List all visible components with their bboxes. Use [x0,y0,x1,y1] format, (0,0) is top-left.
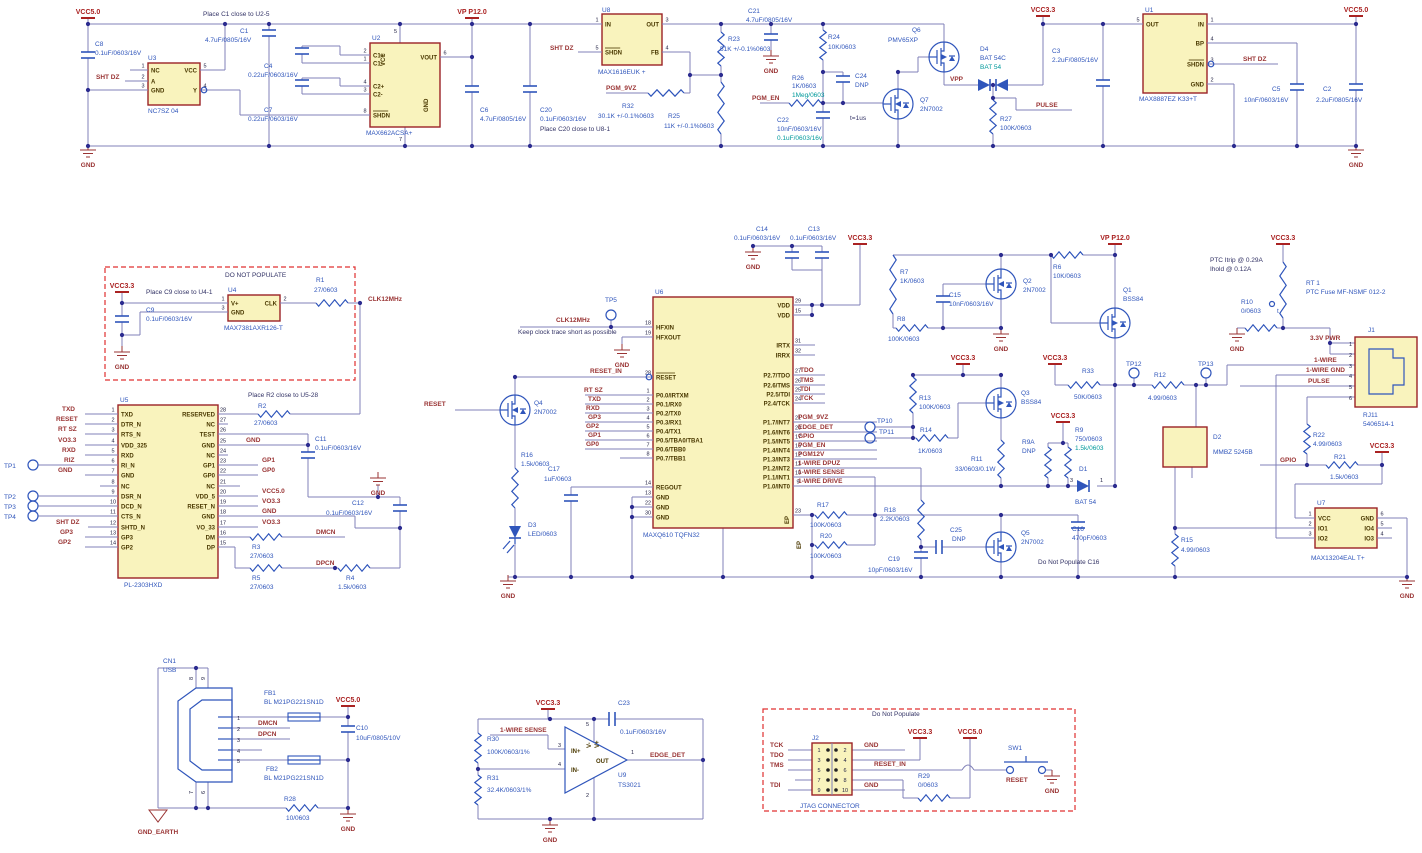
label: 1.5k/0603 [521,461,550,468]
label: OUT [596,759,609,765]
svg-text:23: 23 [220,459,226,465]
junction-dot [719,144,723,148]
label: 5 [237,759,240,765]
label: EP [785,516,791,524]
label: MAX13204EAL T+ [1311,555,1365,562]
label: LED/0603 [528,531,557,538]
label: C2 [1323,86,1332,93]
junction-dot [1046,484,1050,488]
label: BAT 54C [980,55,1006,62]
label: TP10 [877,418,893,425]
label: 0.1uF/0603/16V [790,235,837,242]
junction-dot [267,144,271,148]
junction-dot [751,244,755,248]
label: PGM12V [798,451,825,458]
svg-text:A: A [151,80,156,86]
junction-dot [592,817,596,821]
svg-text:P2.6/TMS: P2.6/TMS [763,384,790,390]
label: 5406514-1 [1363,421,1394,428]
label: 1Meg/0603 [792,92,825,99]
svg-text:RESET: RESET [656,376,676,382]
svg-text:P0.2/TX0: P0.2/TX0 [656,412,682,418]
svg-text:NC: NC [206,423,215,429]
junction-dot [896,144,900,148]
svg-text:P2.4/TCK: P2.4/TCK [764,402,791,408]
svg-text:1: 1 [595,18,598,24]
label: J1 [1368,327,1375,334]
label: 2N7002 [920,106,943,113]
junction-dot [476,767,480,771]
svg-text:GND_EARTH: GND_EARTH [138,829,179,836]
junction-dot [1173,575,1177,579]
label: U7 [1317,500,1326,507]
label: U9 [618,772,627,779]
svg-text:NC: NC [206,485,215,491]
label: U6 [655,289,664,296]
svg-text:P1.3/INT3: P1.3/INT3 [763,458,791,464]
label: 0.1uF/0603/16v [777,135,823,142]
label: C3 [1052,48,1061,55]
svg-text:IO4: IO4 [1364,527,1374,533]
label: U3 [148,55,157,62]
svg-text:DP: DP [207,546,215,552]
svg-text:P1.5/INT5: P1.5/INT5 [763,440,791,446]
svg-text:IRRX: IRRX [776,354,790,360]
label: VO3.3 [262,519,281,526]
label: VCC5.0 [262,488,285,495]
svg-text:TXD: TXD [121,413,134,419]
label: 32.4K/0603/1% [487,787,532,794]
svg-text:GND: GND [121,474,135,480]
label: 1K/0603 [792,83,817,90]
svg-text:VO_33: VO_33 [196,526,215,532]
svg-text:GND: GND [1045,788,1060,795]
svg-text:CLK: CLK [265,302,278,308]
svg-text:NC: NC [151,69,160,75]
label: 33/0603/0.1W [955,466,996,473]
svg-text:GP2: GP2 [121,546,134,552]
label: VO3.3 [58,437,77,444]
label: 0.1uF/0603/16V [146,316,193,323]
label: 10/0603 [286,815,310,822]
junction-dot [911,373,915,377]
svg-text:2: 2 [141,75,144,81]
svg-text:1: 1 [1210,18,1213,24]
label: RESET_IN [590,368,622,375]
svg-text:VCC3.3: VCC3.3 [110,283,135,290]
junction-dot [1049,253,1053,257]
label: USB [163,667,176,674]
label: TP5 [605,297,617,304]
svg-text:7: 7 [111,469,114,475]
junction-dot [346,806,350,810]
label: R3 [252,544,261,551]
label: GND [864,742,879,749]
junction-dot [223,22,227,26]
svg-text:GND: GND [1361,517,1375,523]
label: 1-WIRE DRIVE [798,478,843,485]
label: FB1 [264,690,276,697]
label: 100K/0603 [919,404,951,411]
junction-dot [820,303,824,307]
svg-text:3: 3 [221,306,224,312]
svg-text:RXD: RXD [121,454,134,460]
svg-text:VDD: VDD [777,314,790,320]
label: 1-WIRE SENSE [500,727,547,734]
svg-text:1: 1 [111,408,114,414]
junction-dot [810,303,814,307]
svg-text:GND: GND [202,444,216,450]
junction-dot [810,575,814,579]
junction-dot [721,575,725,579]
label: t [1277,308,1279,315]
label: 30.1K +/-0.1%0603 [598,113,654,120]
junction-dot [841,101,845,105]
svg-text:VCC3.3: VCC3.3 [1051,413,1076,420]
label: PMV65XP [888,37,918,44]
label: 2.2K/0603 [880,516,910,523]
junction-dot [376,495,380,499]
label: RESET [56,416,78,423]
svg-text:1: 1 [221,297,224,303]
label: GND [262,508,277,515]
label: R5 [252,575,261,582]
label: TS3021 [618,782,641,789]
junction-dot [86,88,90,92]
svg-text:RTS_N: RTS_N [121,433,141,439]
label: GND [246,437,261,444]
svg-text:4: 4 [363,80,366,86]
junction-dot [548,717,552,721]
label: 5 [1349,385,1352,391]
svg-text:8: 8 [363,109,366,115]
svg-text:VCC3.3: VCC3.3 [1031,7,1056,14]
svg-text:V+: V+ [231,302,239,308]
junction-dot [1061,441,1065,445]
chip-U3: 1NC2A3GND5VCC4Y [138,63,210,105]
label: GND [864,782,879,789]
junction-dot [306,443,310,447]
label: 470pF/0603 [1072,535,1107,542]
svg-text:12: 12 [110,521,116,527]
label: BAT 54 [1075,499,1096,506]
svg-text:GND: GND [656,516,670,522]
junction-dot [86,144,90,148]
svg-text:32: 32 [795,349,801,355]
junction-dot [592,717,596,721]
label: RXD [62,447,76,454]
label: CLK12MHz [368,296,403,303]
label: NC7SZ 04 [148,108,179,115]
label: 0.1uF/0603/16V [734,235,781,242]
label: BL M21PG221SN1D [264,775,324,782]
label: 100K/0603 [888,336,920,343]
svg-text:17: 17 [220,521,226,527]
svg-text:HFXIN: HFXIN [656,326,674,332]
label: 0.1uF/0603/16V [620,729,667,736]
junction-dot [630,515,634,519]
svg-text:11: 11 [110,510,116,516]
svg-text:15: 15 [795,309,801,315]
svg-text:3: 3 [665,18,668,24]
label: R33 [1082,368,1094,375]
label: R9A [1022,439,1035,446]
label: C13 [808,226,820,233]
label: 7 [399,137,402,143]
label: Ihold @ 0.12A [1210,266,1252,273]
svg-text:5: 5 [1136,18,1139,24]
svg-text:P1.7/INT7: P1.7/INT7 [763,421,791,427]
junction-dot [719,22,723,26]
chip-U4: 1V+3GND2CLK [218,295,290,321]
svg-text:5: 5 [646,425,649,431]
label: 4 [237,749,240,755]
label: 2N7002 [534,409,557,416]
svg-text:VCC5.0: VCC5.0 [336,697,361,704]
label: RIZ [64,457,75,464]
label: V+ [595,740,601,748]
junction-dot [688,73,692,77]
svg-text:P0.5/TBA0/TBA1: P0.5/TBA0/TBA1 [656,439,704,445]
svg-text:GP3: GP3 [121,536,134,542]
label: RT SZ [584,387,603,394]
svg-text:NC: NC [206,454,215,460]
label: 50K/0603 [1074,394,1102,401]
label: TDO [800,367,814,374]
label: C5 [1272,86,1281,93]
label: SHT DZ [96,74,120,81]
svg-text:VCC3.3: VCC3.3 [1043,355,1068,362]
svg-text:GND: GND [151,89,165,95]
svg-text:9: 9 [817,788,820,794]
label: 1.5k/0603 [338,584,367,591]
junction-dot [1194,383,1198,387]
label: R20 [820,533,832,540]
label: 1-WIRE [1314,357,1337,364]
svg-text:P1.6/INT6: P1.6/INT6 [763,431,791,437]
label: Keep clock trace short as possible [518,329,617,336]
junction-dot [999,575,1003,579]
label: 27/0603 [250,584,274,591]
label: PGM_EN [752,95,780,102]
junction-dot [1204,383,1208,387]
junction-dot [991,144,995,148]
label: Place R2 close to U5-28 [248,392,318,399]
junction-dot [1232,144,1236,148]
label: J2 [812,735,819,742]
svg-text:VCC3.3: VCC3.3 [908,729,933,736]
label: Place C9 close to U4-1 [146,289,213,296]
svg-text:P0.4/TX1: P0.4/TX1 [656,430,682,436]
label: R31 [487,775,499,782]
label: DMCN [316,529,336,536]
svg-text:VP P12.0: VP P12.0 [1100,235,1130,242]
svg-text:20: 20 [220,490,226,496]
junction-dot [999,253,1003,257]
label: TMS [770,762,784,769]
svg-text:IN: IN [1198,23,1204,29]
label: R2 [258,403,267,410]
label: TDO [770,752,784,759]
chip-U1: 5OUT1IN4BP3SHDN2GND [1133,14,1217,93]
label: 1-WIRE SENSE [798,469,845,476]
svg-text:13: 13 [110,531,116,537]
svg-text:26: 26 [220,428,226,434]
svg-text:4: 4 [111,439,114,445]
junction-dot [999,326,1003,330]
label: C23 [618,700,630,707]
label: PGM_EN [798,442,826,449]
label: 5 [394,29,397,35]
label: 9 [201,677,207,680]
label: TXD [588,396,601,403]
junction-dot [398,22,402,26]
junction-dot [1066,484,1070,488]
svg-text:8: 8 [843,778,846,784]
svg-text:1: 1 [141,64,144,70]
svg-text:14: 14 [645,481,651,487]
label: 27/0603 [254,420,278,427]
label: R23 [728,36,740,43]
label: EDGE_DET [798,424,833,431]
svg-text:18: 18 [220,510,226,516]
svg-text:1: 1 [646,389,649,395]
label: R32 [622,103,634,110]
label: D2 [1213,434,1222,441]
junction-dot [911,436,915,440]
label: 0.1uF/0603/16V [326,510,373,517]
label: 3 [1070,478,1073,484]
svg-text:30: 30 [645,511,651,517]
junction-dot [999,373,1003,377]
label: R10 [1241,299,1253,306]
junction-dot [86,22,90,26]
svg-text:GND: GND [543,837,558,844]
svg-text:VP P12.0: VP P12.0 [457,9,487,16]
junction-dot [810,513,814,517]
junction-dot [1076,575,1080,579]
svg-text:VCC3.3: VCC3.3 [536,700,561,707]
label: R1 [316,277,325,284]
junction-dot [120,301,124,305]
label: R18 [884,507,896,514]
svg-text:DM: DM [206,536,215,542]
junction-dot [941,326,945,330]
junction-dot [873,513,877,517]
label: TP1 [4,463,16,470]
junction-dot [398,526,402,530]
label: 750/0603 [1075,436,1102,443]
svg-text:GP1: GP1 [203,464,216,470]
label: RESET_IN [874,761,906,768]
junction-dot [991,83,995,87]
svg-text:6: 6 [443,51,446,57]
junction-dot [267,22,271,26]
label: VPP [950,76,964,83]
label: Do Not Populate [872,711,920,718]
label: GND [424,98,430,112]
label: SHT DZ [56,519,80,526]
svg-text:RESET_N: RESET_N [187,505,215,511]
svg-text:GND: GND [764,68,779,75]
svg-text:2: 2 [1210,78,1213,84]
label: 7 [189,791,195,794]
svg-text:VDD_325: VDD_325 [121,444,148,450]
svg-text:5: 5 [203,64,206,70]
label: R9 [1075,427,1084,434]
junction-dot [513,375,517,379]
label: R30 [487,736,499,743]
junction-dot [1354,144,1358,148]
svg-text:18: 18 [645,321,651,327]
junction-dot [1173,526,1177,530]
schematic-canvas: VCC5.0VP P12.0VCC3.3VCC5.0VCC3.3VCC3.3VP… [0,0,1422,853]
diode-box-D2 [1163,427,1207,467]
label: 2 [586,793,589,799]
label: 1K/0603 [918,448,943,455]
label: 4.7uF/0805/16V [480,116,527,123]
junction-dot [1113,383,1117,387]
label: C7 [264,107,273,114]
label: TP12 [1126,361,1142,368]
svg-text:VCC5.0: VCC5.0 [76,9,101,16]
svg-text:23: 23 [795,509,801,515]
label: RESET [1006,777,1028,784]
svg-text:10: 10 [110,500,116,506]
label: C21 [748,8,760,15]
label: PGM_9VZ [606,85,636,92]
label: RXD [586,405,600,412]
junction-dot [911,425,915,429]
label: C20 [540,107,552,114]
label: 3 [237,738,240,744]
svg-text:7: 7 [646,443,649,449]
svg-text:6: 6 [111,459,114,465]
label: MAX662ACSA+ [366,130,413,137]
label: 5 [586,722,589,728]
label: R17 [817,502,829,509]
svg-text:P2.7/TDO: P2.7/TDO [763,374,790,380]
svg-text:8: 8 [646,452,649,458]
svg-text:VCC3.3: VCC3.3 [1271,235,1296,242]
label: V- [587,742,593,748]
label: TP3 [4,504,16,511]
svg-text:IO3: IO3 [1364,537,1374,543]
junction-dot [194,666,198,670]
label: 2N7002 [1023,287,1046,294]
chip-U7: 1VCC2IO13IO26GND5IO44IO3 [1305,508,1387,548]
svg-text:16: 16 [220,531,226,537]
label: 0.1uF/0603/16V [315,445,362,452]
svg-text:4: 4 [1380,532,1383,538]
label: TCK [800,395,814,402]
label: 1-WIRE GND [1306,367,1345,374]
label: 4.7uF/0805/16V [205,37,252,44]
label: MMBZ 5245B [1213,449,1253,456]
label: 2N7002 [1021,539,1044,546]
junction-dot [719,73,723,77]
label: 1-WIRE DPUZ [798,460,840,467]
junction-dot [810,313,814,317]
label: EP [797,541,803,549]
label: FB2 [266,766,278,773]
junction-dot [1113,484,1117,488]
junction-dot [821,144,825,148]
label: 11K +/-0.1%0603 [664,123,714,130]
svg-text:GND: GND [1400,593,1415,600]
svg-text:DSR_N: DSR_N [121,495,141,501]
svg-text:22: 22 [645,501,651,507]
